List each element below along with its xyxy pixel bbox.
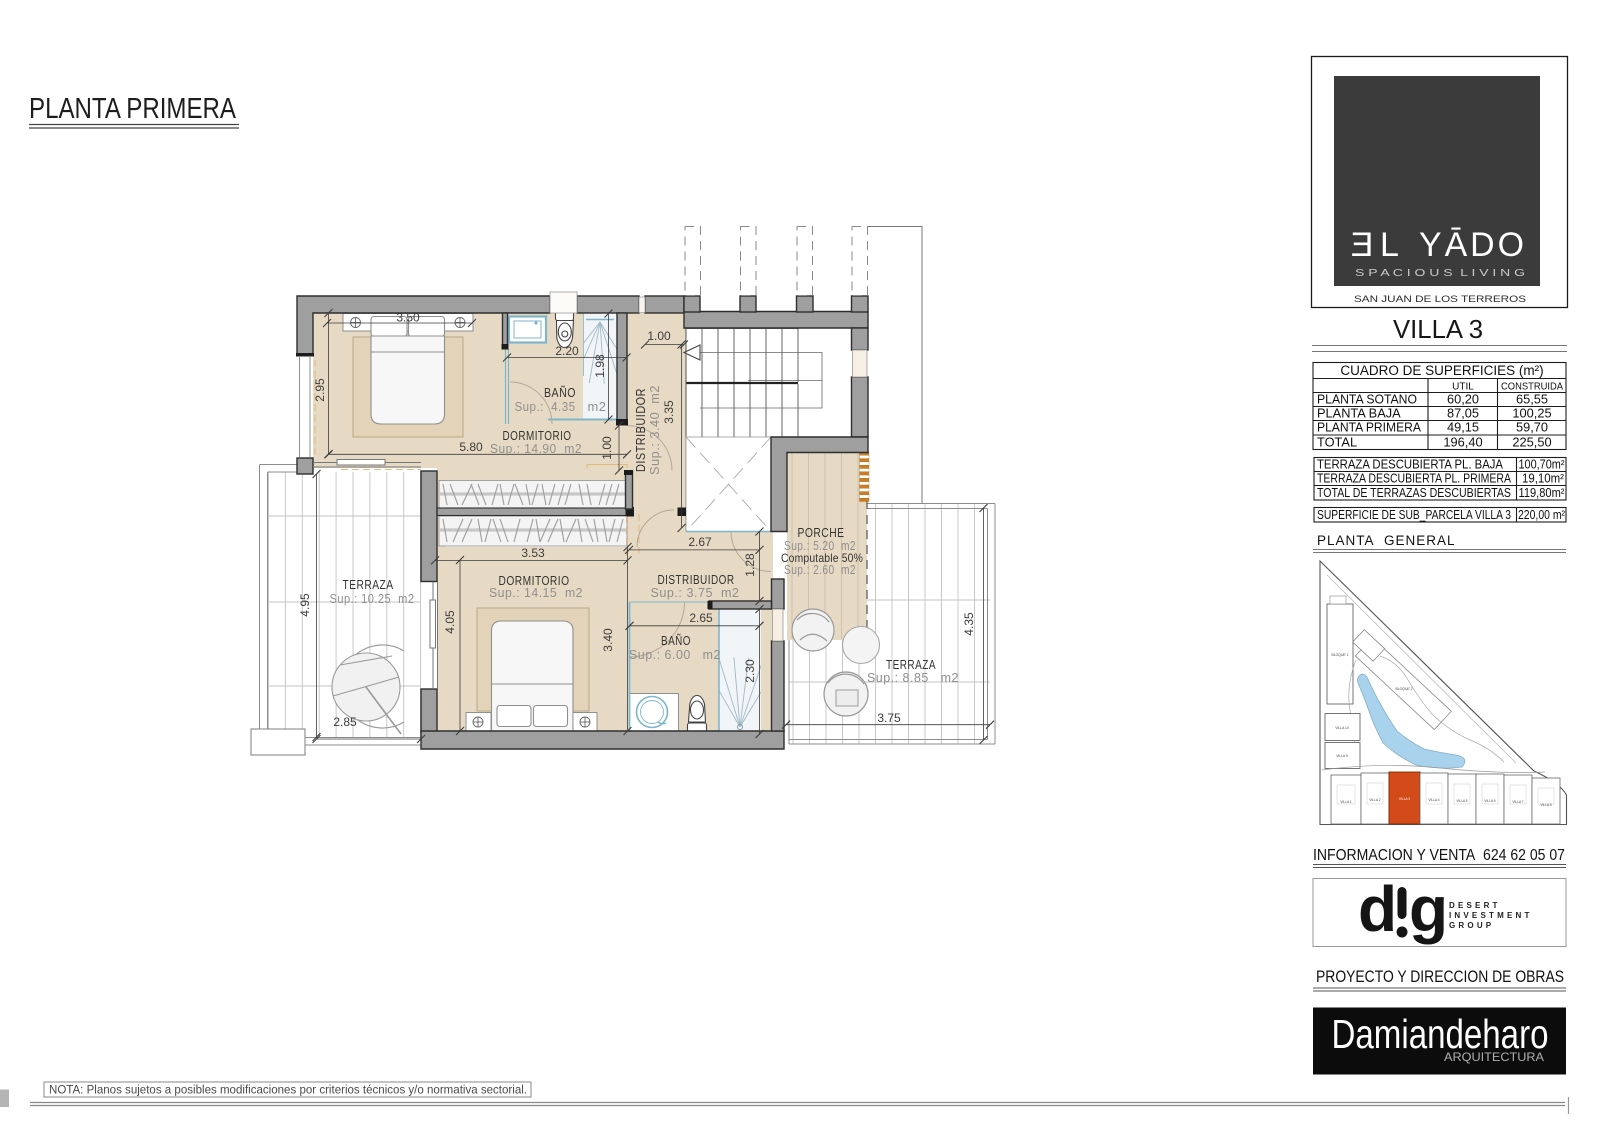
svg-text:Sup.: 2.60 m2: Sup.: 2.60 m2 [784, 563, 856, 577]
svg-text:5.80: 5.80 [459, 440, 483, 454]
svg-text:BLOQUE 1: BLOQUE 1 [1332, 653, 1349, 657]
svg-text:CUADRO DE SUPERFICIES (m²): CUADRO DE SUPERFICIES (m²) [1340, 363, 1543, 378]
svg-text:PLANTA PRIMERA: PLANTA PRIMERA [1317, 420, 1421, 435]
svg-text:VILLA 5: VILLA 5 [1456, 799, 1467, 803]
svg-text:19,10m²: 19,10m² [1522, 472, 1564, 486]
svg-text:1.28: 1.28 [743, 553, 757, 577]
svg-text:196,40: 196,40 [1443, 435, 1482, 450]
svg-text:TERRAZA DESCUBIERTA PL. PRIMER: TERRAZA DESCUBIERTA PL. PRIMERA [1317, 472, 1511, 486]
svg-text:3.50: 3.50 [396, 311, 420, 325]
svg-text:Sup.: 14.90 m2: Sup.: 14.90 m2 [490, 442, 582, 456]
svg-text:m2: m2 [588, 400, 607, 414]
svg-text:4.05: 4.05 [443, 610, 457, 634]
svg-text:VILLA 9: VILLA 9 [1336, 754, 1348, 758]
svg-text:Sup.: 3.75 m2: Sup.: 3.75 m2 [651, 586, 740, 600]
svg-text:E: E [1351, 226, 1374, 264]
svg-text:VILLA 3: VILLA 3 [1399, 797, 1410, 801]
svg-text:VILLA 1: VILLA 1 [1340, 800, 1351, 804]
svg-text:Sup.: 14.15 m2: Sup.: 14.15 m2 [489, 586, 583, 600]
svg-text:VILLA 6: VILLA 6 [1484, 799, 1495, 803]
svg-text:INVESTMENT: INVESTMENT [1449, 911, 1533, 920]
svg-text:SUPERFICIE DE SUB_PARCELA VILL: SUPERFICIE DE SUB_PARCELA VILLA 3 [1317, 508, 1511, 522]
svg-text:100,25: 100,25 [1512, 406, 1551, 421]
svg-text:TERRAZA: TERRAZA [343, 577, 394, 592]
svg-text:2.85: 2.85 [333, 715, 357, 729]
svg-text:4.35: 4.35 [962, 612, 976, 636]
svg-text:100,70m²: 100,70m² [1519, 458, 1565, 472]
svg-text:NOTA: Planos sujetos a posible: NOTA: Planos sujetos a posibles modifica… [49, 1083, 527, 1097]
svg-text:TERRAZA DESCUBIERTA PL. BAJA: TERRAZA DESCUBIERTA PL. BAJA [1317, 458, 1504, 472]
svg-text:PLANTA PRIMERA: PLANTA PRIMERA [29, 93, 237, 125]
svg-text:225,50: 225,50 [1512, 435, 1551, 450]
svg-text:2.65: 2.65 [689, 611, 713, 625]
svg-text:VILLA 10: VILLA 10 [1335, 726, 1349, 730]
svg-text:Sup.: 4.35: Sup.: 4.35 [515, 400, 576, 414]
svg-text:YĀDO: YĀDO [1419, 226, 1527, 264]
svg-text:1.00: 1.00 [647, 329, 671, 343]
svg-text:49,15: 49,15 [1447, 420, 1479, 435]
svg-text:1.98: 1.98 [593, 354, 607, 378]
svg-text:INFORMACION Y VENTA 624 62 05: INFORMACION Y VENTA 624 62 05 07 [1313, 847, 1565, 864]
svg-text:VILLA 7: VILLA 7 [1512, 800, 1523, 804]
svg-text:g: g [1409, 873, 1448, 945]
svg-text:VILLA 2: VILLA 2 [1369, 798, 1380, 802]
svg-text:ARQUITECTURA: ARQUITECTURA [1444, 1052, 1544, 1064]
svg-text:3.53: 3.53 [521, 546, 545, 560]
svg-text:2.30: 2.30 [743, 659, 757, 683]
svg-text:119,80m²: 119,80m² [1519, 486, 1565, 500]
svg-text:L: L [1380, 226, 1402, 264]
svg-text:PLANTA SOTANO: PLANTA SOTANO [1317, 392, 1417, 407]
svg-text:PORCHE: PORCHE [798, 525, 845, 540]
svg-text:2.20: 2.20 [555, 344, 579, 358]
svg-text:2.95: 2.95 [313, 378, 327, 402]
svg-text:59,70: 59,70 [1516, 420, 1548, 435]
svg-text:2.67: 2.67 [688, 535, 712, 549]
svg-text:60,20: 60,20 [1447, 392, 1479, 407]
svg-text:Damiandeharo: Damiandeharo [1332, 1011, 1549, 1057]
svg-text:VILLA 3: VILLA 3 [1393, 314, 1483, 344]
svg-text:DISTRIBUIDOR: DISTRIBUIDOR [658, 572, 735, 587]
svg-text:VILLA 8: VILLA 8 [1540, 803, 1551, 807]
svg-text:GROUP: GROUP [1449, 921, 1494, 930]
svg-text:Sup.: 8.85 m2: Sup.: 8.85 m2 [867, 671, 959, 685]
svg-text:BAÑO: BAÑO [544, 385, 576, 400]
svg-text:VILLA 4: VILLA 4 [1428, 798, 1439, 802]
svg-text:87,05: 87,05 [1447, 406, 1479, 421]
svg-text:BLOQUE 2: BLOQUE 2 [1396, 687, 1413, 691]
svg-text:SAN JUAN DE LOS TERREROS: SAN JUAN DE LOS TERREROS [1354, 294, 1526, 305]
svg-text:TERRAZA: TERRAZA [886, 657, 936, 672]
svg-text:BAÑO: BAÑO [661, 633, 691, 648]
svg-text:PLANTA BAJA: PLANTA BAJA [1317, 406, 1401, 421]
svg-text:DESERT: DESERT [1449, 901, 1501, 910]
svg-text:S P A C I O U S L I V I N G: S P A C I O U S L I V I N G [1355, 268, 1525, 279]
svg-text:TOTAL: TOTAL [1317, 435, 1357, 450]
svg-text:Sup.: 6.00 m2: Sup.: 6.00 m2 [629, 648, 721, 662]
svg-text:Sup.: 3.40 m2: Sup.: 3.40 m2 [648, 385, 662, 475]
svg-text:DORMITORIO: DORMITORIO [503, 428, 572, 443]
svg-text:1.00: 1.00 [600, 436, 614, 460]
svg-text:4.95: 4.95 [298, 593, 312, 617]
svg-text:PLANTA GENERAL: PLANTA GENERAL [1317, 533, 1456, 548]
svg-text:Sup.: 10.25 m2: Sup.: 10.25 m2 [330, 592, 415, 606]
svg-text:3.40: 3.40 [601, 628, 615, 652]
svg-text:PROYECTO Y DIRECCION DE OBRAS: PROYECTO Y DIRECCION DE OBRAS [1316, 968, 1564, 986]
svg-text:65,55: 65,55 [1516, 392, 1548, 407]
svg-text:3.35: 3.35 [662, 400, 676, 424]
svg-text:TOTAL DE TERRAZAS DESCUBIERTAS: TOTAL DE TERRAZAS DESCUBIERTAS [1317, 486, 1511, 500]
svg-text:DISTRIBUIDOR: DISTRIBUIDOR [633, 388, 648, 472]
svg-text:3.75: 3.75 [877, 711, 901, 725]
svg-text:220,00 m²: 220,00 m² [1518, 508, 1565, 522]
svg-text:d: d [1358, 873, 1397, 945]
